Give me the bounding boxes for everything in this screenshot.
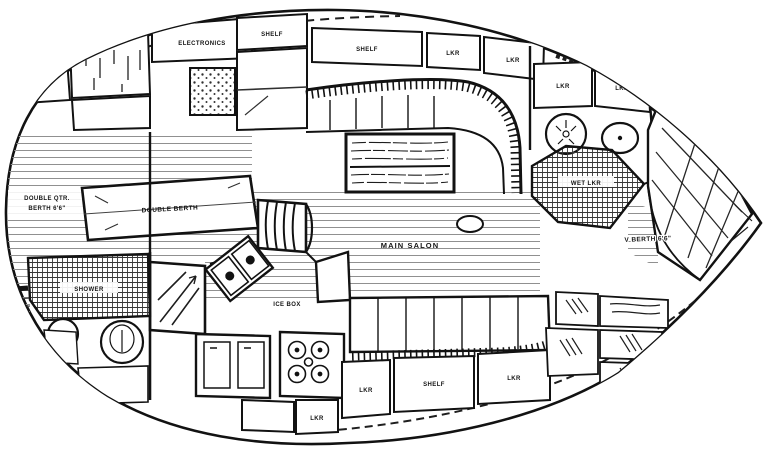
label-lkr-port-1: LKR <box>446 51 460 57</box>
label-aft-berth-2: BERTH 6'6" <box>28 206 65 212</box>
label-lkr-stbd-1: LKR <box>359 388 373 394</box>
berth-top-box <box>70 32 150 98</box>
settee-stbd <box>350 296 550 352</box>
label-shelf-port-1: SHELF <box>261 32 283 38</box>
label-electronics: ELECTRONICS <box>178 41 225 47</box>
label-main-salon: MAIN SALON <box>381 241 440 250</box>
salon-table <box>346 134 454 192</box>
drawer <box>600 330 662 360</box>
label-aft-berth-1: DOUBLE QTR. <box>24 196 70 202</box>
companionway-ladder <box>150 262 205 334</box>
label-lkr-port-2: LKR <box>506 58 520 64</box>
accommodation-plan-svg: LKR ELECTRONICS SHELF SHELF LKR LKR LKR … <box>0 0 765 450</box>
vented-cabinet <box>190 68 235 115</box>
drawer <box>556 292 598 326</box>
mast <box>457 216 483 232</box>
settee-corner-seat <box>316 252 350 302</box>
label-lkr-galley: LKR <box>310 416 324 422</box>
cabinet-door <box>204 342 230 388</box>
label-ice-box: ICE BOX <box>273 302 300 308</box>
label-lkr-stern: LKR <box>31 76 45 82</box>
label-shelf-stbd: SHELF <box>423 382 445 388</box>
locker-box <box>72 96 150 130</box>
label-lkr-fwd-1: LKR <box>556 84 570 90</box>
label-shelf-port-2: SHELF <box>356 47 378 53</box>
label-wet-lkr: WET LKR <box>571 181 601 187</box>
boat-floorplan-screenshot: LKR ELECTRONICS SHELF SHELF LKR LKR LKR … <box>0 0 765 450</box>
drawer <box>546 328 598 376</box>
label-lkr-stbd-2: LKR <box>507 376 521 382</box>
cabinet-door <box>238 342 264 388</box>
drawer <box>600 362 664 396</box>
locker-box <box>242 400 294 432</box>
label-shower: SHOWER <box>74 287 104 293</box>
vanity-box <box>78 366 148 404</box>
